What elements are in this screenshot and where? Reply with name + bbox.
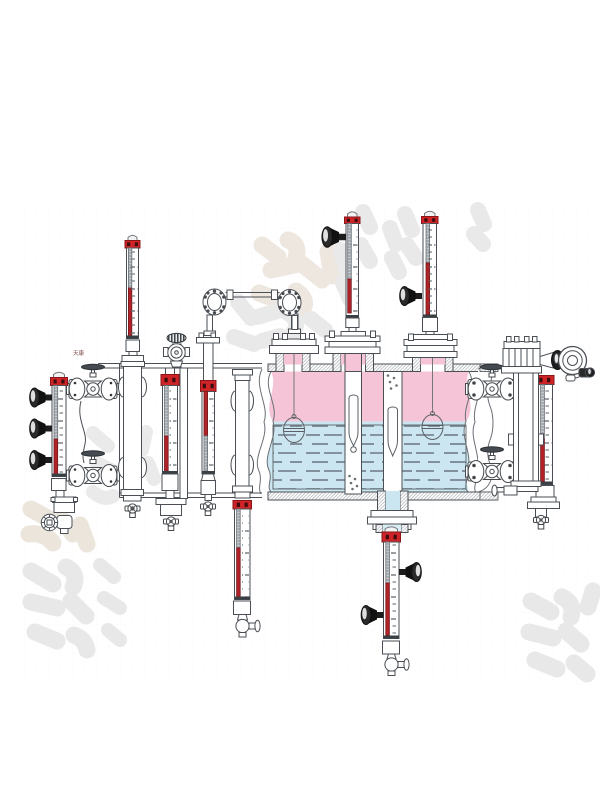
svg-text:天康: 天康	[73, 349, 85, 357]
